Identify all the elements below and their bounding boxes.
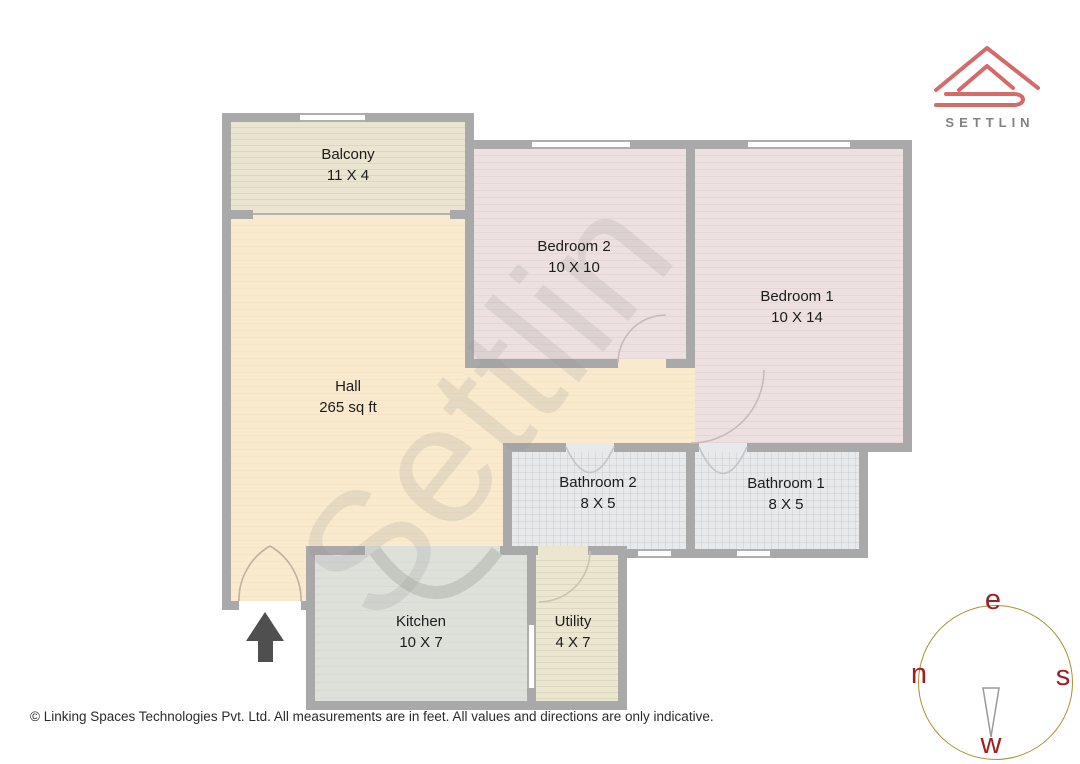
room-label-utility: Utility 4 X 7 <box>488 611 658 653</box>
copyright-disclaimer: © Linking Spaces Technologies Pvt. Ltd. … <box>30 709 714 724</box>
compass-south-label: s <box>1050 660 1076 693</box>
room-label-bathroom-2: Bathroom 2 8 X 5 <box>513 472 683 514</box>
room-name: Hall <box>263 376 433 397</box>
room-dimensions: 10 X 7 <box>336 632 506 653</box>
compass-east-label: e <box>980 584 1006 617</box>
room-dimensions: 8 X 5 <box>513 493 683 514</box>
corridor-floor-strip <box>465 443 503 546</box>
settlin-logo: SETTLIN <box>930 30 1045 130</box>
floor-plan-page: Settlin Balcony 11 X 4 Hall 265 sq ft Be… <box>0 0 1080 764</box>
room-label-bathroom-1: Bathroom 1 8 X 5 <box>701 473 871 515</box>
room-label-bedroom-2: Bedroom 2 10 X 10 <box>489 236 659 278</box>
balcony-window <box>300 113 365 122</box>
room-dimensions: 265 sq ft <box>263 397 433 418</box>
room-dimensions: 11 X 4 <box>263 165 433 186</box>
room-dimensions: 10 X 10 <box>489 257 659 278</box>
room-name: Bathroom 1 <box>701 473 871 494</box>
bathroom-2-window <box>638 549 671 558</box>
room-dimensions: 4 X 7 <box>488 632 658 653</box>
room-name: Kitchen <box>336 611 506 632</box>
bathroom-1-door-opening <box>699 443 747 452</box>
room-name: Balcony <box>263 144 433 165</box>
room-dimensions: 10 X 14 <box>712 307 882 328</box>
room-label-bedroom-1: Bedroom 1 10 X 14 <box>712 286 882 328</box>
room-dimensions: 8 X 5 <box>701 494 871 515</box>
bedroom-1-window <box>748 140 850 149</box>
kitchen-opening <box>365 546 500 555</box>
room-name: Bedroom 1 <box>712 286 882 307</box>
bathroom-1-window <box>737 549 770 558</box>
compass-north-label: n <box>906 658 932 691</box>
bedroom-2-window <box>532 140 630 149</box>
room-name: Bedroom 2 <box>489 236 659 257</box>
room-name: Utility <box>488 611 658 632</box>
room-label-kitchen: Kitchen 10 X 7 <box>336 611 506 653</box>
room-label-hall: Hall 265 sq ft <box>263 376 433 418</box>
compass-west-label: w <box>978 728 1004 761</box>
balcony-sliding-door <box>253 210 450 219</box>
bedroom-2-door-opening <box>618 359 666 368</box>
bathroom-2-door-opening <box>566 443 614 452</box>
room-label-balcony: Balcony 11 X 4 <box>263 144 433 186</box>
utility-door-opening <box>538 546 588 555</box>
main-entrance-opening <box>239 601 301 610</box>
brand-name: SETTLIN <box>930 115 1045 130</box>
settlin-house-icon <box>930 30 1045 108</box>
corridor-floor <box>465 368 695 443</box>
entrance-arrow-icon <box>246 612 284 662</box>
room-name: Bathroom 2 <box>513 472 683 493</box>
